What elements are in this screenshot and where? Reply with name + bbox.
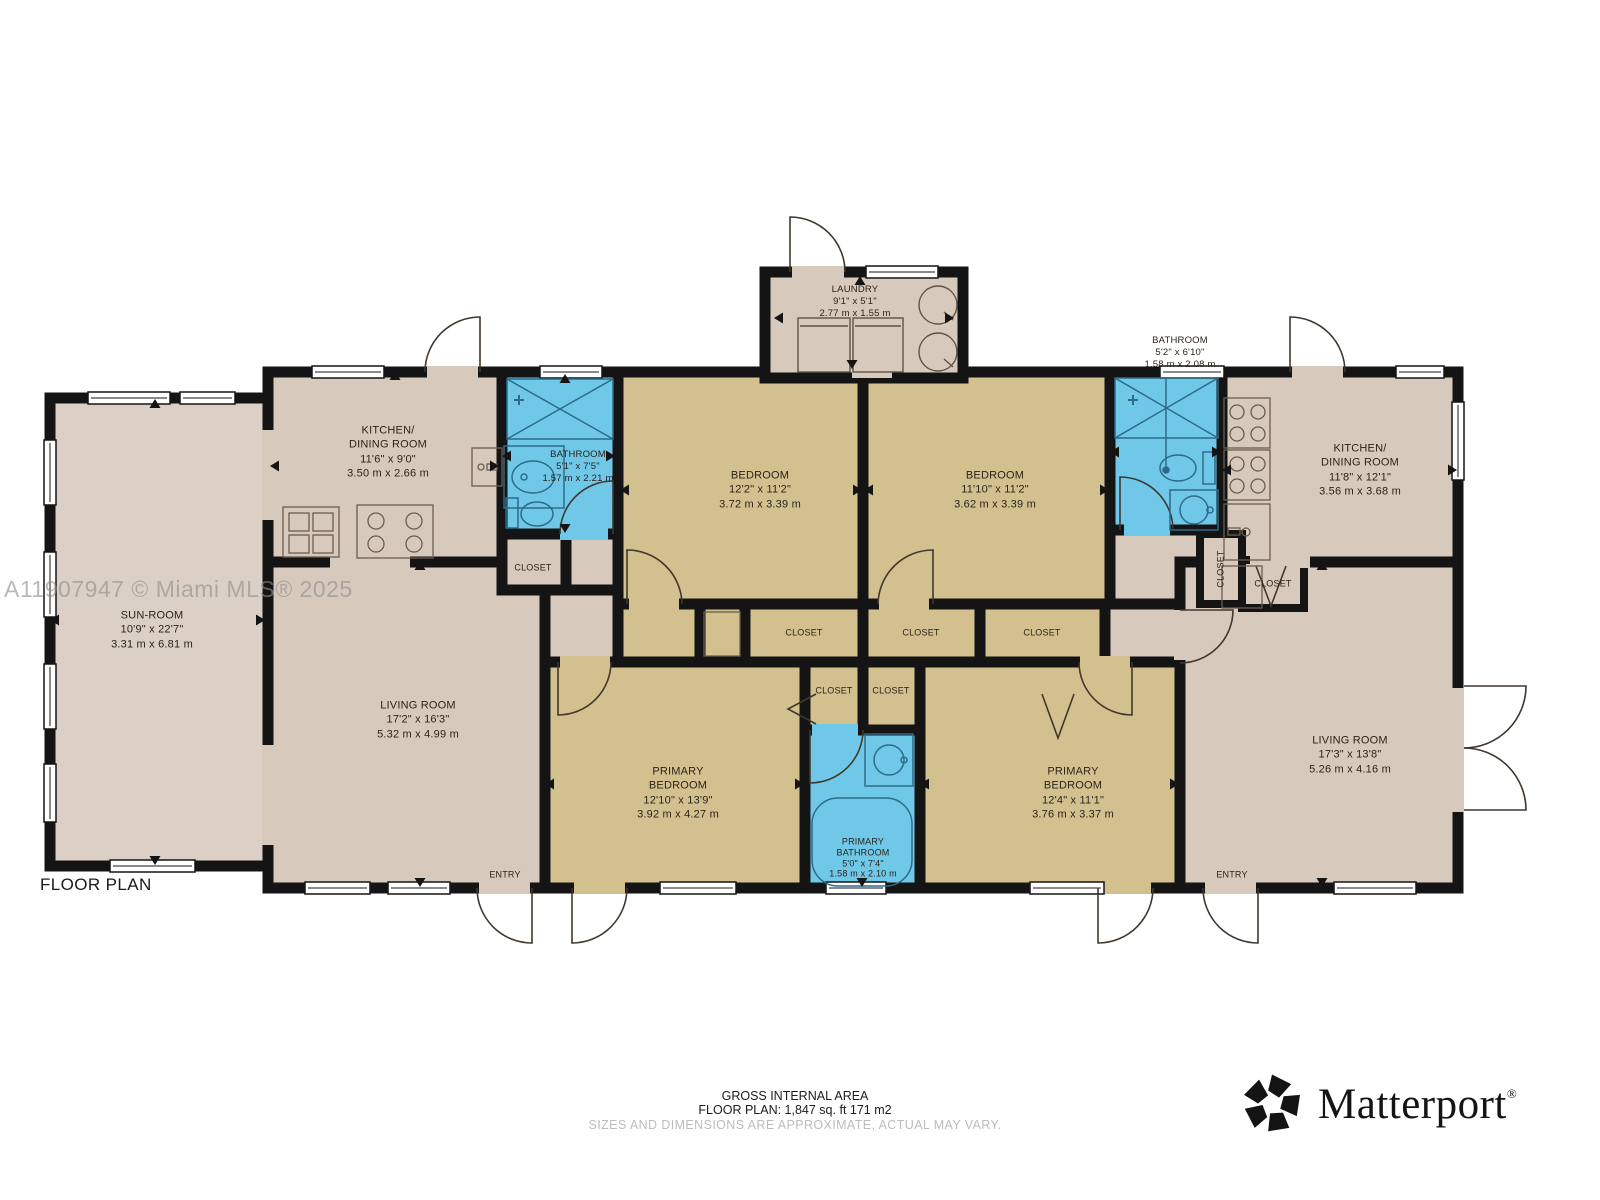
closet-label: CLOSET (1023, 628, 1060, 639)
room-dimension: 3.56 m x 3.68 m (1319, 484, 1401, 498)
room-dimension: 17'3" x 13'8" (1309, 748, 1391, 762)
entry-label: ENTRY (489, 870, 520, 881)
room-dimension: 12'4" x 11'1" (1032, 793, 1114, 807)
room-label-living-right: LIVING ROOM 17'3" x 13'8" 5.26 m x 4.16 … (1309, 734, 1391, 777)
room-dimension: 5.26 m x 4.16 m (1309, 762, 1391, 776)
room-label-kitchen-right: KITCHEN/ DINING ROOM 11'8" x 12'1" 3.56 … (1319, 441, 1401, 498)
closet-label: CLOSET (872, 686, 909, 697)
room-dimension: 1.57 m x 2.21 m (542, 473, 613, 485)
room-name: PRIMARY (829, 836, 897, 847)
room-dimension: 11'8" x 12'1" (1319, 470, 1401, 484)
room-label-primary-bedroom-left: PRIMARY BEDROOM 12'10" x 13'9" 3.92 m x … (637, 764, 719, 821)
closet-label: CLOSET (514, 563, 551, 574)
brand-name: Matterport (1318, 1081, 1507, 1128)
floor-plan-page: A11907947 © Miami MLS® 2025 LAUNDRY 9'1"… (0, 0, 1600, 1200)
room-name: BATHROOM (542, 449, 613, 461)
room-name: KITCHEN/ (347, 423, 429, 437)
mls-watermark: A11907947 © Miami MLS® 2025 (4, 576, 353, 603)
room-name: LAUNDRY (819, 284, 890, 296)
room-label-primary-bathroom: PRIMARY BATHROOM 5'0" x 7'4" 1.58 m x 2.… (829, 836, 897, 879)
room-dimension: 11'10" x 11'2" (954, 483, 1036, 497)
room-label-primary-bedroom-right: PRIMARY BEDROOM 12'4" x 11'1" 3.76 m x 3… (1032, 764, 1114, 821)
room-dimension: 5'1" x 7'5" (542, 461, 613, 473)
room-name: SUN-ROOM (111, 609, 193, 623)
room-label-bathroom-right: BATHROOM 5'2" x 6'10" 1.58 m x 2.08 m (1144, 335, 1215, 371)
room-dimension: 9'1" x 5'1" (819, 296, 890, 308)
room-dimension: 3.72 m x 3.39 m (719, 497, 801, 511)
closet-label: CLOSET (1216, 550, 1227, 587)
plan-title: FLOOR PLAN (40, 875, 152, 895)
room-dimension: 12'2" x 11'2" (719, 483, 801, 497)
room-name: BEDROOM (954, 469, 1036, 483)
room-label-kitchen-left: KITCHEN/ DINING ROOM 11'6" x 9'0" 3.50 m… (347, 423, 429, 480)
room-dimension: 12'10" x 13'9" (637, 793, 719, 807)
closet-label: CLOSET (1254, 579, 1291, 590)
room-label-living-left: LIVING ROOM 17'2" x 16'3" 5.32 m x 4.99 … (377, 699, 459, 742)
room-dimension: 5'2" x 6'10" (1144, 347, 1215, 359)
room-dimension: 11'6" x 9'0" (347, 452, 429, 466)
matterport-brand: Matterport® (1240, 1072, 1517, 1136)
room-name: BEDROOM (719, 469, 801, 483)
room-dimension: 2.77 m x 1.55 m (819, 308, 890, 320)
room-name: DINING ROOM (347, 438, 429, 452)
room-name: LIVING ROOM (1309, 734, 1391, 748)
room-label-bathroom-left: BATHROOM 5'1" x 7'5" 1.57 m x 2.21 m (542, 449, 613, 485)
room-dimension: 5'0" x 7'4" (829, 858, 897, 869)
room-name: KITCHEN/ (1319, 441, 1401, 455)
room-dimension: 3.92 m x 4.27 m (637, 807, 719, 821)
room-name: PRIMARY (637, 764, 719, 778)
room-dimension: 10'9" x 22'7" (111, 623, 193, 637)
closet-label: CLOSET (902, 628, 939, 639)
room-label-bedroom-right: BEDROOM 11'10" x 11'2" 3.62 m x 3.39 m (954, 469, 1036, 512)
room-name: BATHROOM (829, 847, 897, 858)
room-dimension: 3.31 m x 6.81 m (111, 637, 193, 651)
room-name: BEDROOM (637, 779, 719, 793)
matterport-logo-icon (1240, 1072, 1304, 1136)
room-dimension: 1.58 m x 2.10 m (829, 869, 897, 880)
closet-label: CLOSET (815, 686, 852, 697)
room-label-sunroom: SUN-ROOM 10'9" x 22'7" 3.31 m x 6.81 m (111, 609, 193, 652)
room-name: LIVING ROOM (377, 699, 459, 713)
room-name: BATHROOM (1144, 335, 1215, 347)
room-name: DINING ROOM (1319, 456, 1401, 470)
room-dimension: 1.58 m x 2.08 m (1144, 359, 1215, 371)
room-dimension: 3.50 m x 2.66 m (347, 466, 429, 480)
registered-mark: ® (1507, 1086, 1517, 1101)
matterport-wordmark: Matterport® (1318, 1080, 1517, 1129)
room-dimension: 3.76 m x 3.37 m (1032, 807, 1114, 821)
closet-label: CLOSET (785, 628, 822, 639)
room-label-bedroom-left: BEDROOM 12'2" x 11'2" 3.72 m x 3.39 m (719, 469, 801, 512)
room-dimension: 3.62 m x 3.39 m (954, 497, 1036, 511)
room-dimension: 5.32 m x 4.99 m (377, 727, 459, 741)
room-name: PRIMARY (1032, 764, 1114, 778)
room-dimension: 17'2" x 16'3" (377, 713, 459, 727)
room-name: BEDROOM (1032, 779, 1114, 793)
room-label-laundry: LAUNDRY 9'1" x 5'1" 2.77 m x 1.55 m (819, 284, 890, 320)
entry-label: ENTRY (1216, 870, 1247, 881)
